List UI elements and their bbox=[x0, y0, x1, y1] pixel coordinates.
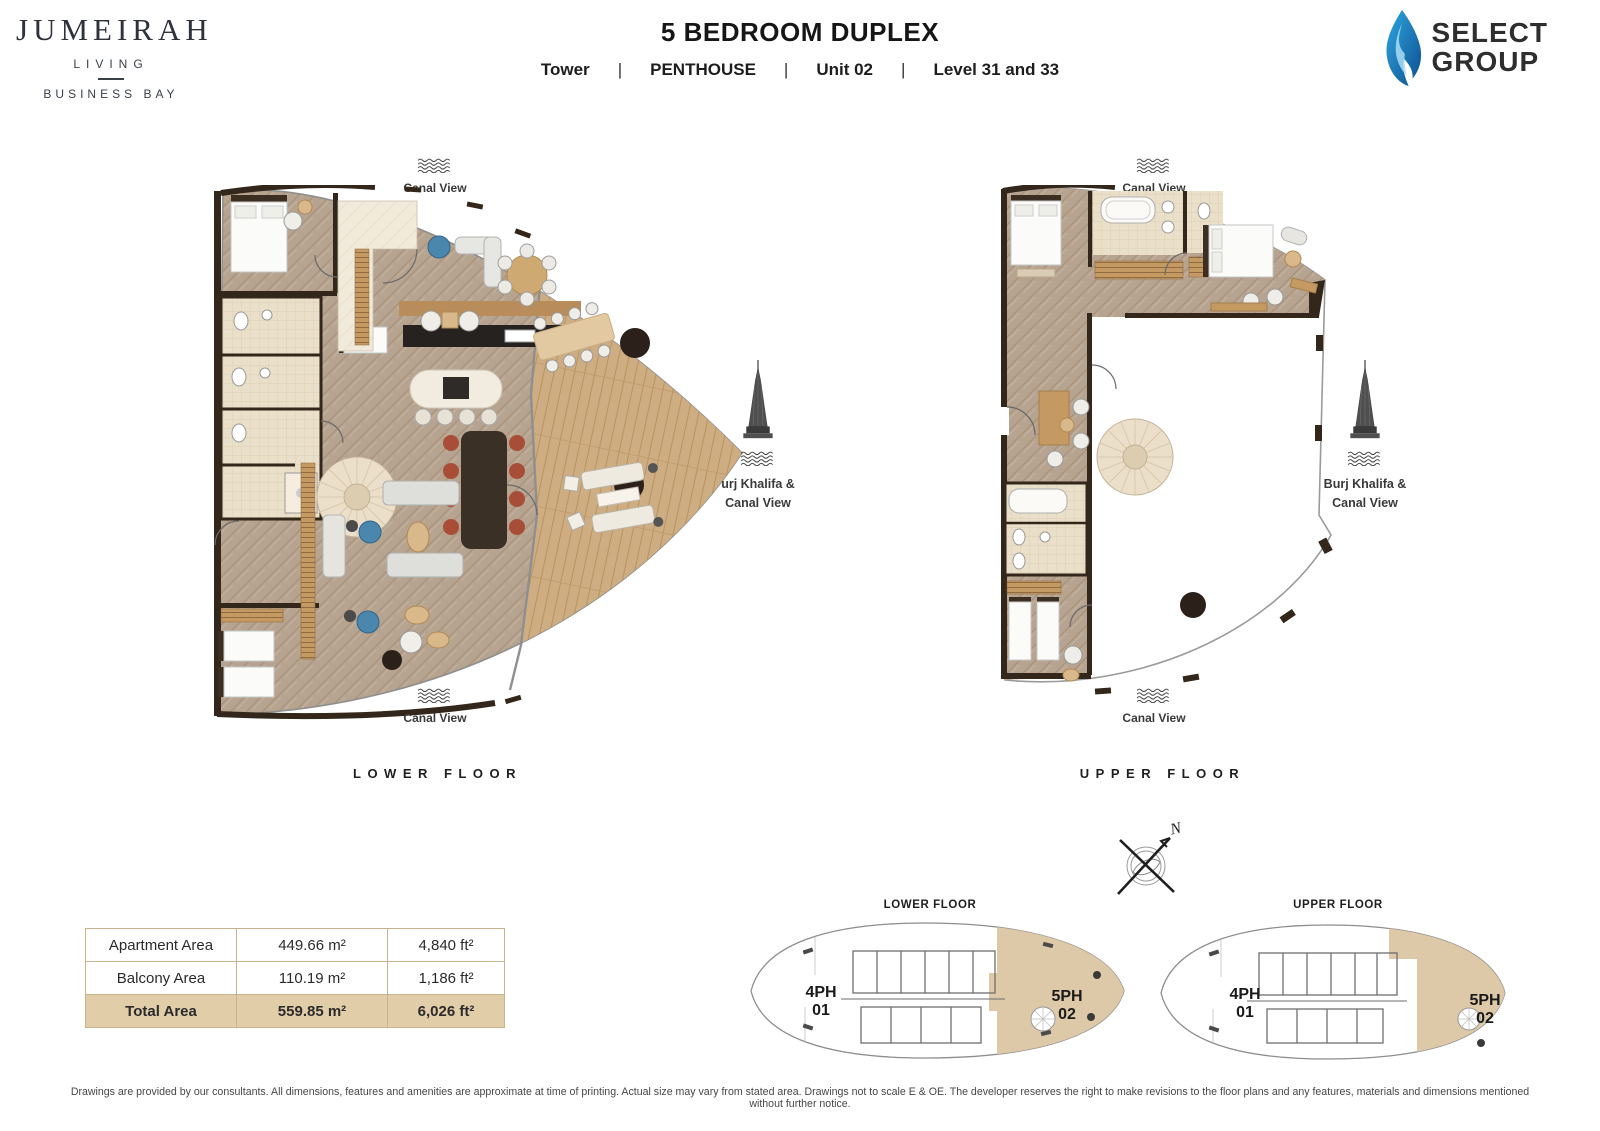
title-block: 5 BEDROOM DUPLEX Tower | PENTHOUSE | Uni… bbox=[420, 17, 1180, 80]
table-row-balcony: Balcony Area 110.19 m² 1,186 ft² bbox=[86, 962, 505, 995]
subtitle-tower: Tower bbox=[541, 60, 590, 80]
burj-label-line1: urj Khalifa & bbox=[700, 475, 816, 494]
waves-icon bbox=[1135, 688, 1173, 703]
burj-label-line2: Canal View bbox=[1307, 494, 1423, 513]
total-area-label: Total Area bbox=[86, 995, 237, 1028]
flame-icon bbox=[1380, 8, 1424, 88]
canal-view-label: Canal View bbox=[393, 711, 477, 725]
unit-5ph-label: 5PH bbox=[1051, 988, 1082, 1005]
unit-4ph-number: 01 bbox=[1236, 1004, 1254, 1021]
spiral-staircase bbox=[1097, 419, 1173, 495]
keyplan-upper: 4PH 01 5PH 02 bbox=[1155, 915, 1510, 1065]
terrace-planter bbox=[1180, 592, 1206, 618]
compass-north-label: N bbox=[1168, 820, 1184, 839]
unit-4ph-label: 4PH bbox=[1229, 986, 1260, 1003]
keyplan-dot bbox=[1093, 971, 1101, 979]
keyplan-dot bbox=[1477, 1039, 1485, 1047]
subtitle-separator: | bbox=[901, 60, 905, 80]
waves-icon bbox=[740, 451, 776, 466]
brand-sub: LIVING bbox=[16, 57, 206, 71]
burj-khalifa-icon bbox=[1347, 360, 1383, 446]
subtitle-separator: | bbox=[618, 60, 622, 80]
area-table: Apartment Area 449.66 m² 4,840 ft² Balco… bbox=[85, 928, 505, 1028]
developer-line2: GROUP bbox=[1432, 48, 1548, 77]
lower-floor-plan bbox=[205, 185, 750, 725]
brand-location: BUSINESS BAY bbox=[16, 87, 206, 101]
lower-canal-view-bottom: Canal View bbox=[393, 688, 477, 725]
burj-label-line1: Burj Khalifa & bbox=[1307, 475, 1423, 494]
bathroom-lower-left bbox=[1005, 483, 1087, 575]
jumeirah-logo: JUMEIRAH LIVING BUSINESS BAY bbox=[16, 12, 206, 101]
table-row-total: Total Area 559.85 m² 6,026 ft² bbox=[86, 995, 505, 1028]
waves-icon bbox=[1347, 451, 1383, 466]
subtitle-penthouse: PENTHOUSE bbox=[650, 60, 756, 80]
apartment-area-metric: 449.66 m² bbox=[237, 929, 388, 962]
balcony-area-label: Balcony Area bbox=[86, 962, 237, 995]
upper-floor-caption: UPPER FLOOR bbox=[1055, 766, 1270, 781]
subtitle-level: Level 31 and 33 bbox=[933, 60, 1059, 80]
page-subtitle: Tower | PENTHOUSE | Unit 02 | Level 31 a… bbox=[420, 60, 1180, 80]
unit-5ph-number: 02 bbox=[1476, 1010, 1494, 1027]
apartment-area-imperial: 4,840 ft² bbox=[388, 929, 505, 962]
lower-burj-label: urj Khalifa & Canal View bbox=[700, 360, 816, 514]
balcony-planter bbox=[620, 328, 650, 358]
upper-burj-label: Burj Khalifa & Canal View bbox=[1307, 360, 1423, 514]
table-row-apartment: Apartment Area 449.66 m² 4,840 ft² bbox=[86, 929, 505, 962]
disclaimer-text: Drawings are provided by our consultants… bbox=[0, 1086, 1600, 1110]
total-area-imperial: 6,026 ft² bbox=[388, 995, 505, 1028]
unit-4ph-label: 4PH bbox=[805, 984, 836, 1001]
bedroom-bottom-left bbox=[218, 609, 283, 697]
subtitle-separator: | bbox=[784, 60, 788, 80]
keyplan-upper-caption: UPPER FLOOR bbox=[1253, 899, 1423, 911]
apartment-area-label: Apartment Area bbox=[86, 929, 237, 962]
unit-5ph-number: 02 bbox=[1058, 1006, 1076, 1023]
waves-icon bbox=[416, 158, 454, 173]
developer-line1: SELECT bbox=[1432, 19, 1548, 48]
total-area-metric: 559.85 m² bbox=[237, 995, 388, 1028]
unit-4ph-number: 01 bbox=[812, 1002, 830, 1019]
lower-floor-caption: LOWER FLOOR bbox=[330, 766, 545, 781]
canal-view-label: Canal View bbox=[1112, 711, 1196, 725]
balcony-area-imperial: 1,186 ft² bbox=[388, 962, 505, 995]
burj-label-line2: Canal View bbox=[700, 494, 816, 513]
upper-canal-view-bottom: Canal View bbox=[1112, 688, 1196, 725]
subtitle-unit: Unit 02 bbox=[816, 60, 873, 80]
keyplan-lower: 4PH 01 5PH 02 bbox=[745, 915, 1130, 1065]
wardrobe bbox=[355, 249, 369, 345]
brochure-page: JUMEIRAH LIVING BUSINESS BAY 5 BEDROOM D… bbox=[0, 0, 1600, 1131]
brand-divider bbox=[98, 78, 124, 80]
select-group-logo: SELECT GROUP bbox=[1380, 8, 1548, 88]
bedroom-upper-left bbox=[1011, 195, 1061, 277]
keyplan-stair bbox=[1031, 1007, 1055, 1031]
keyplan-lower-caption: LOWER FLOOR bbox=[845, 899, 1015, 911]
keyplan-dot bbox=[1087, 1013, 1095, 1021]
compass-icon: N bbox=[1108, 820, 1188, 900]
balcony-area-metric: 110.19 m² bbox=[237, 962, 388, 995]
wall-top bbox=[221, 185, 375, 193]
unit-5ph-label: 5PH bbox=[1469, 992, 1500, 1009]
waves-icon bbox=[416, 688, 454, 703]
waves-icon bbox=[1135, 158, 1173, 173]
burj-khalifa-icon bbox=[740, 360, 776, 446]
developer-name: SELECT GROUP bbox=[1432, 19, 1548, 76]
page-title: 5 BEDROOM DUPLEX bbox=[420, 17, 1180, 48]
brand-name: JUMEIRAH bbox=[16, 12, 206, 48]
